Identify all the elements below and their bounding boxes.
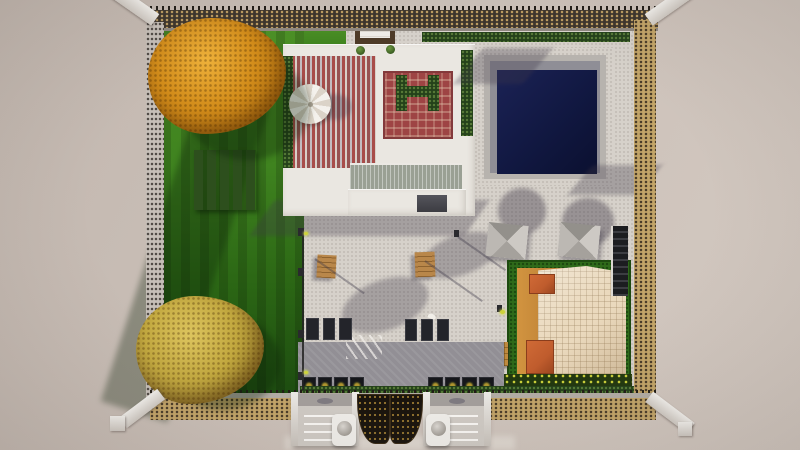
north-hedge-row (422, 32, 630, 42)
corner-pillar-northwest (109, 0, 160, 26)
corner-pillar-southwest-cap (110, 416, 125, 431)
fence-post-1 (298, 228, 304, 236)
fence-post-3 (298, 330, 304, 338)
dome-pillar-left (332, 414, 356, 446)
corner-pillar-southeast-cap (678, 422, 692, 436)
fence-lamp-glow-1 (304, 232, 308, 235)
corner-pillar-northeast (645, 0, 696, 26)
floor-mats-east (405, 319, 449, 341)
potted-plant-1 (356, 46, 365, 55)
lower-wing (348, 189, 466, 215)
fence-post-4 (298, 372, 304, 380)
dome-pillar-right (426, 414, 450, 446)
floor-mats-west (306, 318, 352, 340)
fence-post-2 (298, 268, 304, 276)
garden-fence (302, 228, 304, 390)
stair-landing-mark-left (317, 398, 333, 404)
house-dormer-south (526, 340, 554, 374)
house-dormer-north (529, 274, 555, 294)
shade-canopy-1 (485, 222, 528, 260)
potted-plant-2 (386, 45, 395, 54)
stair-landing-mark-right (449, 398, 465, 404)
pergola-vine-cross (396, 86, 439, 97)
gate-door-right (390, 394, 423, 444)
ornate-gate (357, 394, 423, 442)
wall-grille (611, 226, 628, 296)
garage-opening (417, 195, 447, 212)
street-lamp-glow (500, 310, 505, 314)
east-wall (634, 20, 656, 402)
louvered-roof (350, 163, 462, 191)
aerial-compound-render (0, 0, 800, 450)
shade-canopy-2 (557, 222, 600, 260)
red-carpet (383, 71, 453, 139)
gate-door-left (357, 394, 390, 444)
swimming-pool (497, 70, 597, 174)
fence-lamp-glow-2 (304, 371, 308, 374)
south-wall-east-segment (489, 398, 656, 420)
